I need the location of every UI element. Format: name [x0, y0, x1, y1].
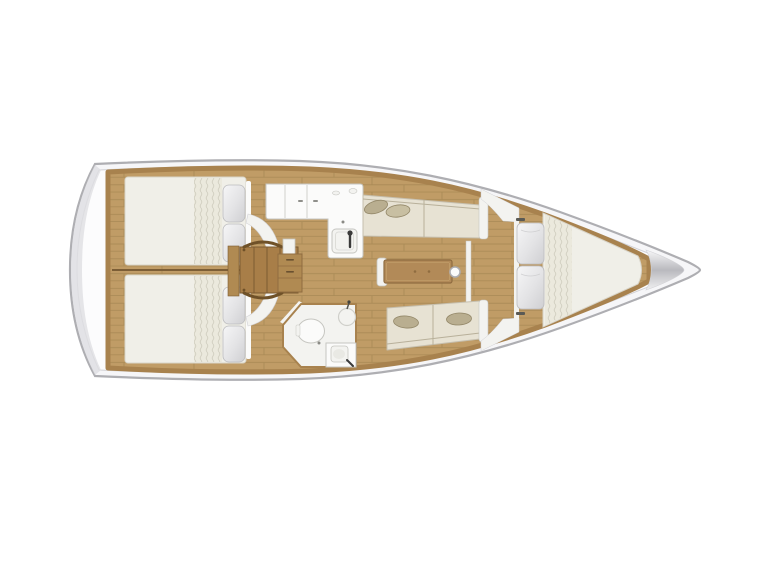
pillow: [223, 185, 245, 222]
table-fitting: [414, 270, 417, 273]
blanket-texture: [194, 276, 222, 362]
stair-fitting: [243, 289, 246, 292]
pillow: [517, 223, 544, 264]
boat-floor-plan-canvas: [0, 0, 768, 576]
drain-dot: [342, 221, 345, 224]
settee-armrest: [479, 300, 488, 342]
hatch-latch: [516, 312, 525, 315]
table-pedestal: [450, 267, 460, 277]
hatch-latch: [516, 218, 525, 221]
compression-post-panel: [466, 241, 471, 305]
toilet-pump: [318, 342, 321, 345]
faucet-knob: [347, 230, 352, 235]
saloon-table: [384, 260, 452, 283]
cabinet-handle: [298, 200, 303, 202]
blanket-texture: [194, 178, 222, 264]
companionway-bulkhead: [228, 246, 239, 296]
sink-bowl: [333, 349, 345, 359]
drawer-handle: [286, 259, 294, 261]
toilet: [298, 319, 325, 343]
toilet-hinge: [296, 325, 300, 336]
cabinet-handle: [313, 200, 318, 202]
table-fitting: [428, 270, 431, 273]
shower-head: [347, 300, 350, 303]
stove-knob: [333, 191, 340, 195]
pillow: [517, 266, 544, 309]
drawer-handle: [286, 271, 294, 273]
head-bathroom: [280, 300, 356, 367]
stair-fitting: [243, 249, 246, 252]
blanket-texture: [545, 215, 572, 325]
boat-floor-plan: [0, 0, 768, 576]
pillow: [223, 326, 245, 362]
stove-knob: [349, 189, 357, 194]
